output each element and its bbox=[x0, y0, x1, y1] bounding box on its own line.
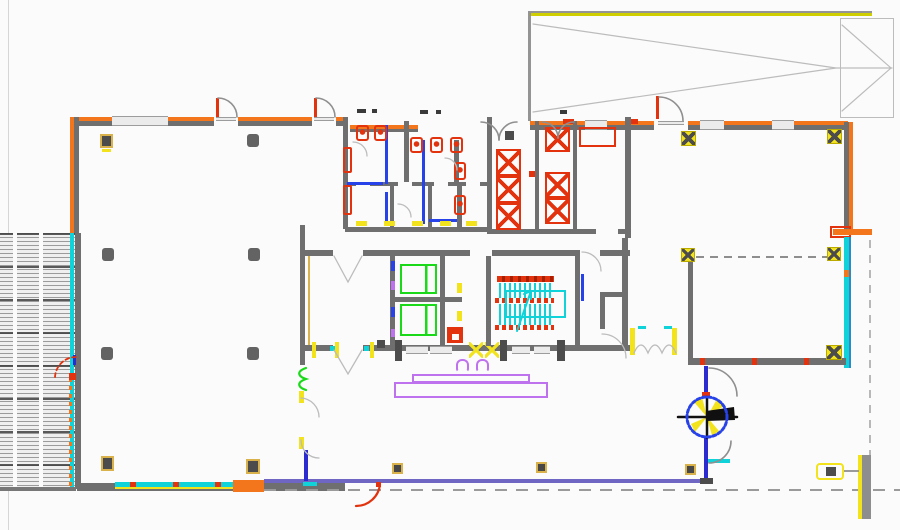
column-yellow-x bbox=[827, 247, 841, 261]
storefront-yellow bbox=[115, 487, 233, 489]
green-switchback-mark bbox=[299, 368, 306, 390]
bath-partition-1 bbox=[404, 121, 409, 182]
column-yellow-x bbox=[827, 129, 842, 144]
curtainwall-slate-line bbox=[264, 479, 704, 483]
riser-xbox-b3 bbox=[545, 198, 570, 224]
tiny-label-mark-4 bbox=[436, 110, 441, 114]
riser-xbox-a3 bbox=[496, 203, 521, 230]
elev-purple-mark-2 bbox=[391, 329, 395, 337]
window-top-right-2 bbox=[700, 120, 724, 130]
bath-threshold-2 bbox=[384, 221, 395, 226]
revolving-door-icon bbox=[678, 397, 737, 438]
tiny-label-mark-5 bbox=[560, 110, 567, 114]
column bbox=[248, 248, 260, 261]
reception-desk-main bbox=[394, 382, 548, 398]
wall-step-orange bbox=[833, 229, 872, 235]
elev-blue-mark-2 bbox=[391, 307, 395, 317]
floor-plan bbox=[0, 0, 900, 530]
stair-cyan-outline bbox=[505, 290, 566, 318]
lobby-west-jamb-2 bbox=[299, 437, 304, 449]
bath-mid-gap-3 bbox=[434, 182, 448, 186]
equip-red-outline bbox=[579, 127, 616, 147]
door-jamb-yellow-2 bbox=[335, 342, 339, 358]
revolving-door-red-tick bbox=[702, 392, 710, 396]
bath-bottom-wall bbox=[345, 227, 490, 232]
east-fixture-link bbox=[844, 470, 859, 472]
property-dashed-line bbox=[264, 489, 900, 491]
passage-cyan-tick-1 bbox=[638, 326, 646, 329]
core-north-band-3 bbox=[492, 250, 580, 256]
canopy-outline bbox=[533, 24, 892, 112]
stair-right-wall bbox=[575, 256, 580, 346]
site-dashed-vertical bbox=[869, 240, 871, 458]
equip-red-small bbox=[529, 171, 535, 177]
storefront-red-tick-1 bbox=[130, 482, 136, 487]
core-south-sill-2 bbox=[430, 346, 452, 354]
reception-stool-2 bbox=[476, 359, 489, 372]
terrace-red-tick-2 bbox=[752, 358, 757, 365]
column-yellow-x bbox=[681, 248, 695, 262]
wall-west-gray bbox=[74, 117, 79, 234]
shaft-right-wall bbox=[625, 117, 631, 238]
bath-threshold-5 bbox=[466, 221, 477, 226]
column-small bbox=[685, 464, 696, 475]
lobby-west-blue-wall bbox=[304, 450, 308, 481]
bottom-orange-pier bbox=[233, 480, 264, 492]
east-bar-gray bbox=[862, 455, 871, 519]
shaft-divider-1 bbox=[535, 121, 539, 231]
stair-landing-redbar bbox=[497, 276, 554, 282]
storefront-red-tick-2 bbox=[173, 482, 179, 487]
shaft-dark-equip bbox=[505, 131, 514, 140]
core-north-band-2 bbox=[363, 250, 470, 256]
bath-threshold-4 bbox=[440, 221, 451, 226]
column-ring-tick bbox=[102, 149, 111, 152]
tiny-label-mark-2 bbox=[372, 109, 377, 113]
storefront-red-tick-3 bbox=[215, 482, 221, 487]
bottom-cyan-tick bbox=[303, 482, 317, 486]
shaft-divider-2 bbox=[573, 121, 577, 231]
door-2-jamb bbox=[314, 98, 317, 117]
core-south-cyan-tick-2 bbox=[364, 346, 369, 351]
meeting-room-tan-finish bbox=[308, 256, 310, 346]
bath-blue-wall-4 bbox=[347, 182, 383, 185]
column-ringed bbox=[246, 459, 260, 474]
core-south-post-1 bbox=[395, 340, 402, 361]
plan-linework bbox=[0, 0, 900, 530]
core-south-black-post bbox=[377, 340, 385, 348]
bath-blue-wall-2 bbox=[422, 140, 425, 224]
wall-top-right-gray bbox=[530, 125, 848, 130]
toilet-fixture-1 bbox=[356, 125, 369, 141]
sink-counter-1 bbox=[343, 147, 352, 173]
riser-xbox-a1 bbox=[496, 149, 521, 176]
passage-jamb-yellow-1 bbox=[630, 328, 635, 355]
terrace-room-bottom-wall bbox=[688, 358, 846, 365]
elevator-car-2 bbox=[400, 304, 437, 336]
terrace-room-left-wall bbox=[688, 262, 693, 360]
terrace-red-tick-1 bbox=[700, 358, 705, 365]
toilet-fixture-4 bbox=[430, 137, 443, 153]
terrace-red-tick-3 bbox=[804, 358, 809, 365]
column-yellow-x bbox=[681, 131, 696, 146]
toilet-fixture-7 bbox=[454, 195, 466, 215]
bottom-door-red-hinge bbox=[376, 482, 381, 487]
toilet-fixture-2 bbox=[374, 125, 387, 141]
door-1-sill bbox=[216, 117, 236, 121]
canopy-right-box bbox=[840, 18, 894, 118]
core-south-sill-1 bbox=[406, 346, 428, 354]
elev-purple-mark-1 bbox=[391, 281, 395, 290]
meeting-room-left-wall bbox=[300, 225, 305, 365]
stair-left-wall bbox=[486, 256, 491, 346]
core-south-sill-4 bbox=[534, 346, 550, 354]
stair-red-dash-2 bbox=[495, 325, 554, 330]
canopy-top-yellow-line bbox=[528, 13, 872, 16]
column bbox=[247, 134, 259, 147]
bath-threshold-3 bbox=[412, 221, 423, 226]
door-jamb-yellow-3 bbox=[370, 342, 374, 358]
lobby-red-box-notch bbox=[452, 334, 459, 340]
elev-door-yellow-2 bbox=[457, 311, 462, 321]
column-yellow-x bbox=[826, 345, 842, 360]
passage-jamb-yellow-2 bbox=[672, 328, 677, 355]
tiny-label-mark-3 bbox=[420, 110, 428, 114]
bath-threshold-1 bbox=[356, 221, 367, 226]
passage-cyan-tick-2 bbox=[664, 326, 672, 329]
elevator-car-1 bbox=[400, 264, 437, 294]
door-2-sill bbox=[314, 117, 334, 121]
reception-stool-1 bbox=[456, 359, 469, 372]
side-door-cyan-leaf bbox=[708, 459, 730, 463]
column bbox=[101, 347, 113, 360]
bath-mid-gap-4 bbox=[466, 182, 480, 186]
wall-east-steel-edge bbox=[849, 237, 851, 368]
hatch-door-navy-tick bbox=[73, 355, 76, 365]
core-south-band-1 bbox=[300, 345, 333, 351]
core-south-post-3 bbox=[557, 340, 565, 361]
stair-blue-rail bbox=[581, 274, 584, 301]
core-south-yellow-x1 bbox=[469, 342, 483, 358]
shaft-left-wall bbox=[487, 117, 492, 234]
hatch-door-hinge-dot bbox=[69, 373, 76, 380]
toilet-fixture-3 bbox=[410, 137, 423, 153]
canopy-left-edge bbox=[528, 11, 531, 121]
column-small bbox=[392, 463, 403, 474]
ramp-bottom-edge bbox=[0, 487, 76, 491]
ramp-hatch-area bbox=[0, 233, 76, 489]
toilet-fixture-5 bbox=[450, 137, 463, 153]
wall-corner-dark bbox=[700, 478, 713, 484]
core-south-sill-3 bbox=[512, 346, 530, 354]
bath-mid-gap-2 bbox=[398, 182, 412, 186]
ramp-hatch-gap-2 bbox=[39, 233, 43, 489]
revolving-door-wall-top bbox=[704, 366, 708, 395]
elev-door-yellow-1 bbox=[457, 283, 462, 293]
elev-blue-mark-1 bbox=[391, 261, 395, 271]
elev-mid-wall bbox=[392, 297, 462, 302]
column-ringed bbox=[100, 134, 113, 148]
wall-east-gray bbox=[844, 122, 849, 235]
toilet-fixture-6 bbox=[454, 162, 466, 180]
door-3-sill bbox=[658, 121, 684, 125]
wall-east-orange bbox=[849, 122, 853, 235]
window-top-right-3 bbox=[772, 120, 794, 130]
door-jamb-yellow-1 bbox=[312, 342, 316, 358]
window-top-left bbox=[112, 116, 168, 126]
column bbox=[102, 248, 114, 261]
shaft-bottom-opening bbox=[596, 229, 618, 234]
riser-xbox-a2 bbox=[496, 176, 521, 203]
column-small bbox=[536, 462, 547, 473]
core-south-cyan-tick-1 bbox=[330, 346, 335, 351]
bath-blue-wall-3 bbox=[385, 192, 388, 224]
door-swing-arcs bbox=[218, 97, 737, 463]
east-fixture-core bbox=[826, 467, 836, 476]
riser-xbox-b1 bbox=[545, 127, 570, 152]
core-south-post-2 bbox=[500, 340, 507, 361]
ramp-orange-dash-edge bbox=[69, 378, 72, 489]
column bbox=[247, 347, 259, 360]
door-1-jamb bbox=[216, 98, 219, 117]
riser-xbox-b2 bbox=[545, 172, 570, 198]
ramp-hatch-gap-1 bbox=[13, 233, 17, 489]
core-north-band-4 bbox=[600, 250, 630, 256]
wall-east-orange-tick bbox=[844, 270, 849, 277]
closet-wall-v bbox=[600, 297, 605, 329]
lobby-west-jamb-1 bbox=[299, 391, 304, 403]
elev-shaft-right-wall bbox=[440, 256, 445, 346]
door-3-jamb bbox=[656, 96, 659, 119]
sink-counter-2 bbox=[343, 185, 352, 215]
tiny-label-mark-1 bbox=[357, 109, 366, 113]
terrace-room-dashed-top bbox=[696, 256, 830, 258]
column-ringed bbox=[101, 456, 114, 471]
